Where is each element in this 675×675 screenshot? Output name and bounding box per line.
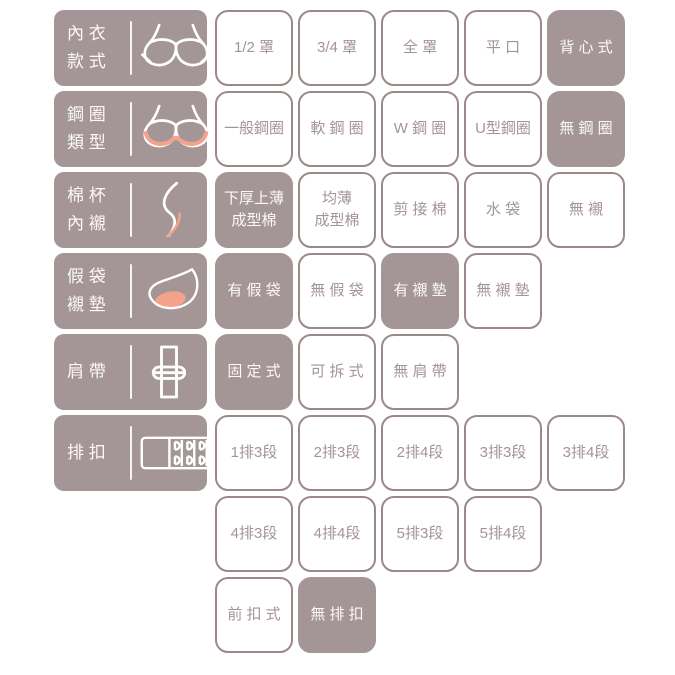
option-cell[interactable]: 4排3段 xyxy=(215,496,293,572)
category-label-text: 棉 杯 內 襯 xyxy=(67,182,125,238)
option-cell[interactable]: 4排4段 xyxy=(298,496,376,572)
category-label-text: 內 衣 款 式 xyxy=(67,20,125,76)
option-cell[interactable]: 無 鋼 圈 xyxy=(547,91,625,167)
label-divider xyxy=(130,264,132,318)
label-divider xyxy=(130,345,132,399)
category-label-text: 假 袋 襯 墊 xyxy=(67,263,125,319)
option-cell[interactable]: 背 心 式 xyxy=(547,10,625,86)
option-cell[interactable]: 無 假 袋 xyxy=(298,253,376,329)
category-label-pad-pocket: 假 袋 襯 墊 xyxy=(54,253,207,329)
option-cell[interactable]: W 鋼 圈 xyxy=(381,91,459,167)
option-cell[interactable]: 全 罩 xyxy=(381,10,459,86)
category-label-bra-style: 內 衣 款 式 xyxy=(54,10,207,86)
option-cells: 1/2 罩 3/4 罩 全 罩 平 口 背 心 式 xyxy=(215,10,630,86)
option-cell[interactable]: 有 襯 墊 xyxy=(381,253,459,329)
option-cell[interactable]: 1排3段 xyxy=(215,415,293,491)
option-cell[interactable]: 一般鋼圈 xyxy=(215,91,293,167)
spec-row-shoulder-strap: 肩 帶 固 定 式 可 拆 式 無 肩 帶 xyxy=(54,334,630,410)
spec-row-underwire-type: 鋼 圈 類 型 一般鋼圈 軟 鋼 圈 W 鋼 圈 U型鋼圈 無 鋼 圈 xyxy=(54,91,630,167)
option-cells: 下厚上薄 成型棉 均薄 成型棉 剪 接 棉 水 袋 無 襯 xyxy=(215,172,630,248)
option-cell[interactable]: 前 扣 式 xyxy=(215,577,293,653)
option-cell[interactable]: 2排4段 xyxy=(381,415,459,491)
option-cell[interactable]: 3排3段 xyxy=(464,415,542,491)
option-cell[interactable]: 水 袋 xyxy=(464,172,542,248)
bra-icon xyxy=(139,19,213,77)
category-label-text: 排 扣 xyxy=(67,439,125,467)
option-cell[interactable]: 5排3段 xyxy=(381,496,459,572)
category-label-text: 鋼 圈 類 型 xyxy=(67,101,125,157)
option-cell[interactable]: 有 假 袋 xyxy=(215,253,293,329)
option-cells: 4排3段 4排4段 5排3段 5排4段 xyxy=(215,496,547,572)
spec-row-hook-rows-2: 4排3段 4排4段 5排3段 5排4段 xyxy=(215,496,630,572)
label-divider xyxy=(130,102,132,156)
cup-liner-icon xyxy=(139,179,200,241)
option-cell[interactable]: 3/4 罩 xyxy=(298,10,376,86)
pad-icon xyxy=(139,262,207,320)
label-divider xyxy=(130,426,132,480)
option-cell[interactable]: 無 排 扣 xyxy=(298,577,376,653)
underwire-bra-icon xyxy=(139,100,213,158)
category-label-hook-rows: 排 扣 xyxy=(54,415,207,491)
hook-closure-icon xyxy=(139,428,215,478)
option-cells: 有 假 袋 無 假 袋 有 襯 墊 無 襯 墊 xyxy=(215,253,547,329)
label-divider xyxy=(130,21,132,75)
option-cells: 一般鋼圈 軟 鋼 圈 W 鋼 圈 U型鋼圈 無 鋼 圈 xyxy=(215,91,630,167)
option-cell[interactable]: 下厚上薄 成型棉 xyxy=(215,172,293,248)
option-cell[interactable]: 可 拆 式 xyxy=(298,334,376,410)
option-cell[interactable]: 均薄 成型棉 xyxy=(298,172,376,248)
category-label-cup-liner: 棉 杯 內 襯 xyxy=(54,172,207,248)
option-cell[interactable]: 固 定 式 xyxy=(215,334,293,410)
option-cell[interactable]: 5排4段 xyxy=(464,496,542,572)
spec-row-bra-style: 內 衣 款 式 1/2 罩 3/4 罩 全 罩 平 口 背 心 式 xyxy=(54,10,630,86)
option-cells: 固 定 式 可 拆 式 無 肩 帶 xyxy=(215,334,464,410)
option-cell[interactable]: 無 襯 xyxy=(547,172,625,248)
option-cells: 1排3段 2排3段 2排4段 3排3段 3排4段 xyxy=(215,415,630,491)
category-label-shoulder-strap: 肩 帶 xyxy=(54,334,207,410)
category-label-text: 肩 帶 xyxy=(67,358,125,386)
option-cell[interactable]: 平 口 xyxy=(464,10,542,86)
option-cell[interactable]: 無 襯 墊 xyxy=(464,253,542,329)
option-cells: 前 扣 式 無 排 扣 xyxy=(215,577,381,653)
category-label-underwire-type: 鋼 圈 類 型 xyxy=(54,91,207,167)
option-cell[interactable]: 2排3段 xyxy=(298,415,376,491)
label-divider xyxy=(130,183,132,237)
option-cell[interactable]: 3排4段 xyxy=(547,415,625,491)
spec-row-pad-pocket: 假 袋 襯 墊 有 假 袋 無 假 袋 有 襯 墊 無 襯 墊 xyxy=(54,253,630,329)
option-cell[interactable]: 1/2 罩 xyxy=(215,10,293,86)
bra-spec-chart: 內 衣 款 式 1/2 罩 3/4 罩 全 罩 平 口 背 心 式 xyxy=(54,10,630,658)
spec-row-cup-liner: 棉 杯 內 襯 下厚上薄 成型棉 均薄 成型棉 剪 接 棉 水 袋 無 襯 xyxy=(54,172,630,248)
option-cell[interactable]: 剪 接 棉 xyxy=(381,172,459,248)
spec-row-hook-rows: 排 扣 1排3段 2排3段 2排4段 3排3段 3排4段 xyxy=(54,415,630,491)
option-cell[interactable]: U型鋼圈 xyxy=(464,91,542,167)
spec-row-hook-rows-3: 前 扣 式 無 排 扣 xyxy=(215,577,630,653)
strap-icon xyxy=(139,342,200,402)
option-cell[interactable]: 軟 鋼 圈 xyxy=(298,91,376,167)
option-cell[interactable]: 無 肩 帶 xyxy=(381,334,459,410)
